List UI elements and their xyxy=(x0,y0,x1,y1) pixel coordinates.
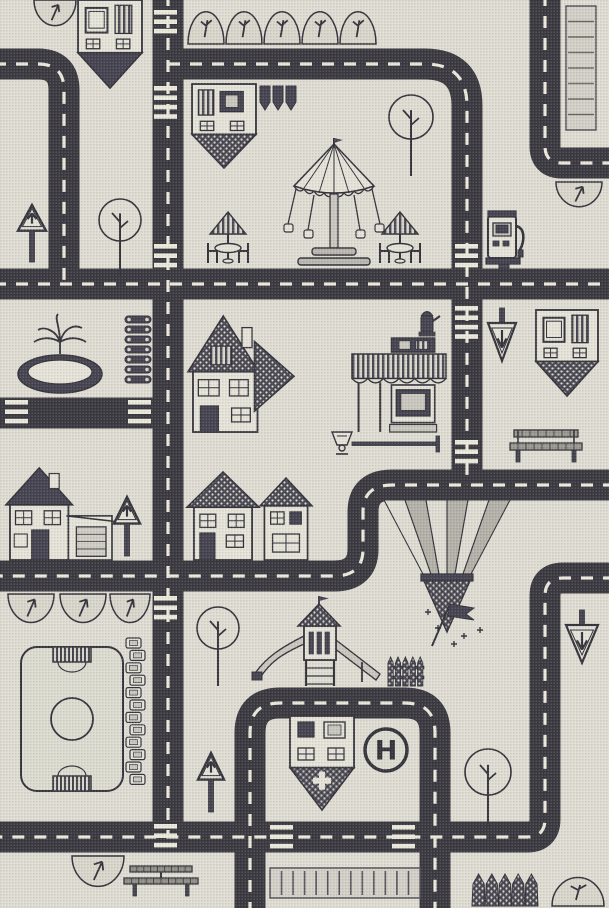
crosswalk xyxy=(154,824,177,847)
crosswalk xyxy=(455,440,478,463)
crosswalk xyxy=(154,596,177,619)
crosswalk xyxy=(270,825,293,848)
helipad-letter: H xyxy=(375,736,398,767)
helipad: H xyxy=(365,729,407,771)
kids-road-play-rug: H xyxy=(0,0,609,908)
crosswalk xyxy=(128,400,151,423)
logs xyxy=(125,316,151,383)
crosswalk xyxy=(154,10,177,33)
crosswalk xyxy=(154,244,177,267)
crosswalk xyxy=(455,244,478,267)
rug-map-svg: H xyxy=(0,0,609,908)
crosswalk xyxy=(392,825,415,848)
pennants xyxy=(260,86,296,110)
soccer xyxy=(21,647,123,791)
parking-lot-bottom xyxy=(270,868,420,898)
parking-strip-top-right xyxy=(566,6,596,130)
crosswalk xyxy=(5,400,28,423)
